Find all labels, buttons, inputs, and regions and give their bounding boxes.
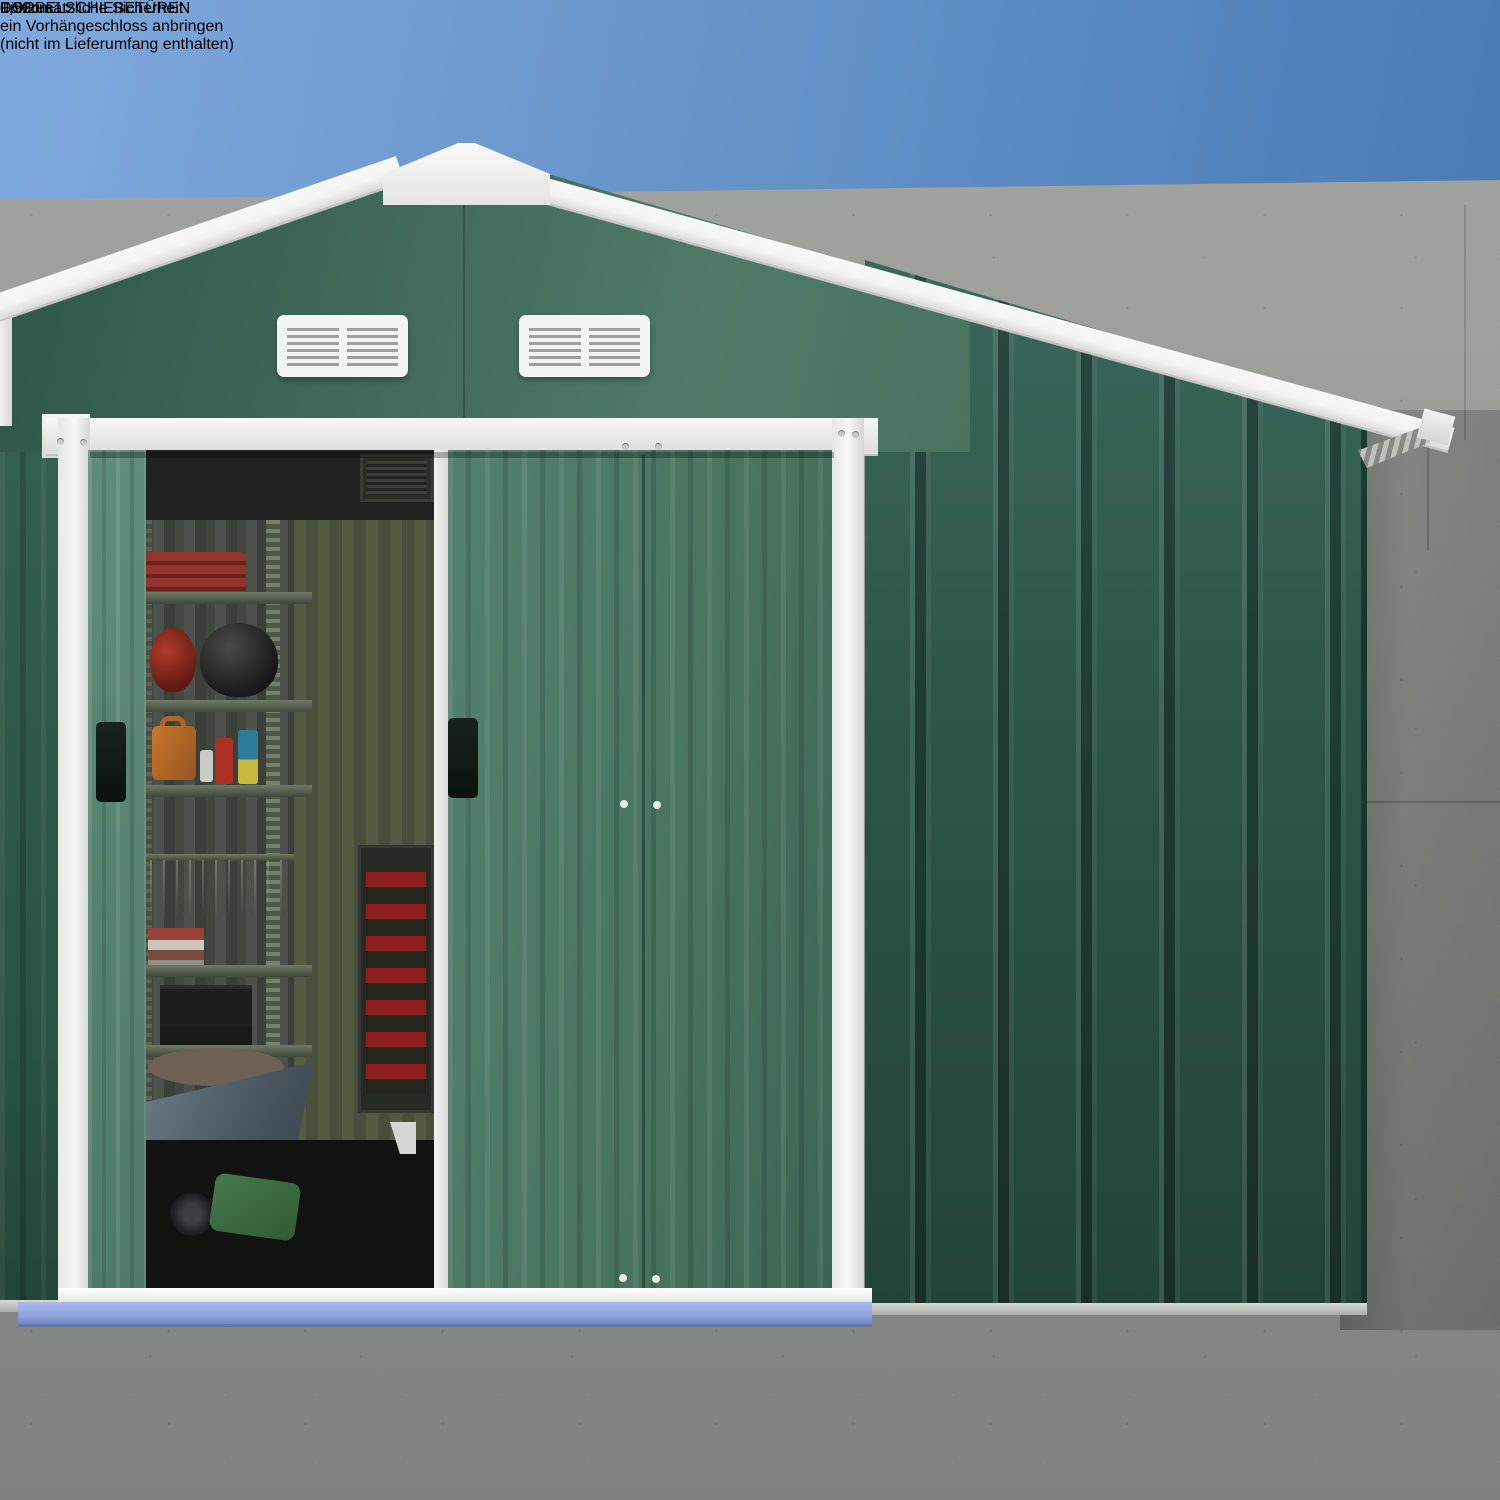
white-flower-cluster xyxy=(332,1422,406,1470)
screw xyxy=(655,443,662,450)
vent-louver xyxy=(519,315,650,377)
screw xyxy=(80,439,87,446)
base-width-label: 0,96cm xyxy=(0,0,52,18)
white-flower-cluster xyxy=(206,1226,284,1276)
white-flower-cluster xyxy=(142,1140,214,1186)
screw xyxy=(57,438,64,445)
door-jamb-right xyxy=(832,418,864,1313)
pink-daisy-flower xyxy=(1378,782,1406,810)
door-panel-seam xyxy=(642,455,645,1300)
sliding-door-right xyxy=(448,450,832,1305)
door-screw xyxy=(653,801,661,809)
product-image: DOPPELSCHIEBETÜREN Für zusätzliche Siche… xyxy=(0,0,1500,1500)
pink-daisy-flower xyxy=(1452,1035,1484,1067)
concrete-joint xyxy=(1427,440,1429,550)
subtext-line: (nicht im Lieferumfang enthalten) xyxy=(0,36,234,54)
vent-louver xyxy=(277,315,408,377)
white-flower-cluster xyxy=(14,1298,86,1346)
pink-daisy-flower xyxy=(1474,640,1500,678)
screw xyxy=(852,431,859,438)
pink-daisy-flower xyxy=(1388,600,1422,634)
concrete-joint xyxy=(1464,205,1466,440)
vent-divider xyxy=(339,321,347,371)
storage-crates xyxy=(160,985,252,1047)
bottle xyxy=(200,750,213,782)
pink-daisy-flower xyxy=(1458,722,1492,756)
pink-daisy-flower xyxy=(1448,582,1478,612)
white-flower-cluster xyxy=(14,1168,84,1214)
shed-base-rail xyxy=(865,1303,1367,1315)
pink-daisy-flower xyxy=(1400,1002,1436,1038)
pink-daisy-flower xyxy=(1392,878,1434,920)
white-flower-cluster xyxy=(50,1238,116,1282)
shelf xyxy=(144,965,312,977)
bottle xyxy=(238,730,258,784)
white-flower-cluster xyxy=(176,1352,256,1406)
door-screw xyxy=(652,1275,660,1283)
white-flower-cluster xyxy=(118,1262,180,1304)
screw xyxy=(838,430,845,437)
pink-daisy-flower xyxy=(1382,1052,1410,1080)
door-lead-edge xyxy=(434,450,448,1303)
tool-chest-drawers xyxy=(366,872,426,1094)
hanging-tools xyxy=(150,860,290,922)
door-screw xyxy=(620,800,628,808)
foliage-blob xyxy=(440,1390,660,1500)
red-helmet xyxy=(150,628,196,692)
black-helmet xyxy=(200,623,278,697)
pink-daisy-flower xyxy=(1468,952,1500,992)
pink-daisy-flower xyxy=(1398,690,1428,720)
gas-can xyxy=(152,726,196,780)
vent-divider xyxy=(581,321,589,371)
book-stack xyxy=(148,928,204,968)
tool-chest xyxy=(358,845,434,1113)
lintel-shadow xyxy=(90,452,834,458)
shelf xyxy=(144,592,312,604)
door-handle-right xyxy=(448,718,478,798)
white-flower-cluster xyxy=(84,1148,146,1190)
shelf xyxy=(144,700,312,712)
pink-daisy-flower xyxy=(1470,800,1500,840)
white-flower-cluster xyxy=(282,1368,370,1426)
subtext-line: ein Vorhängeschloss anbringen xyxy=(0,18,234,36)
screw xyxy=(622,443,629,450)
door-screw xyxy=(619,1274,627,1282)
red-towels xyxy=(146,552,246,592)
door-handle-left xyxy=(96,722,126,802)
bottle xyxy=(216,738,233,784)
pink-daisy-flower xyxy=(1440,906,1474,940)
shelf xyxy=(144,785,312,797)
interior-vent xyxy=(360,454,434,502)
